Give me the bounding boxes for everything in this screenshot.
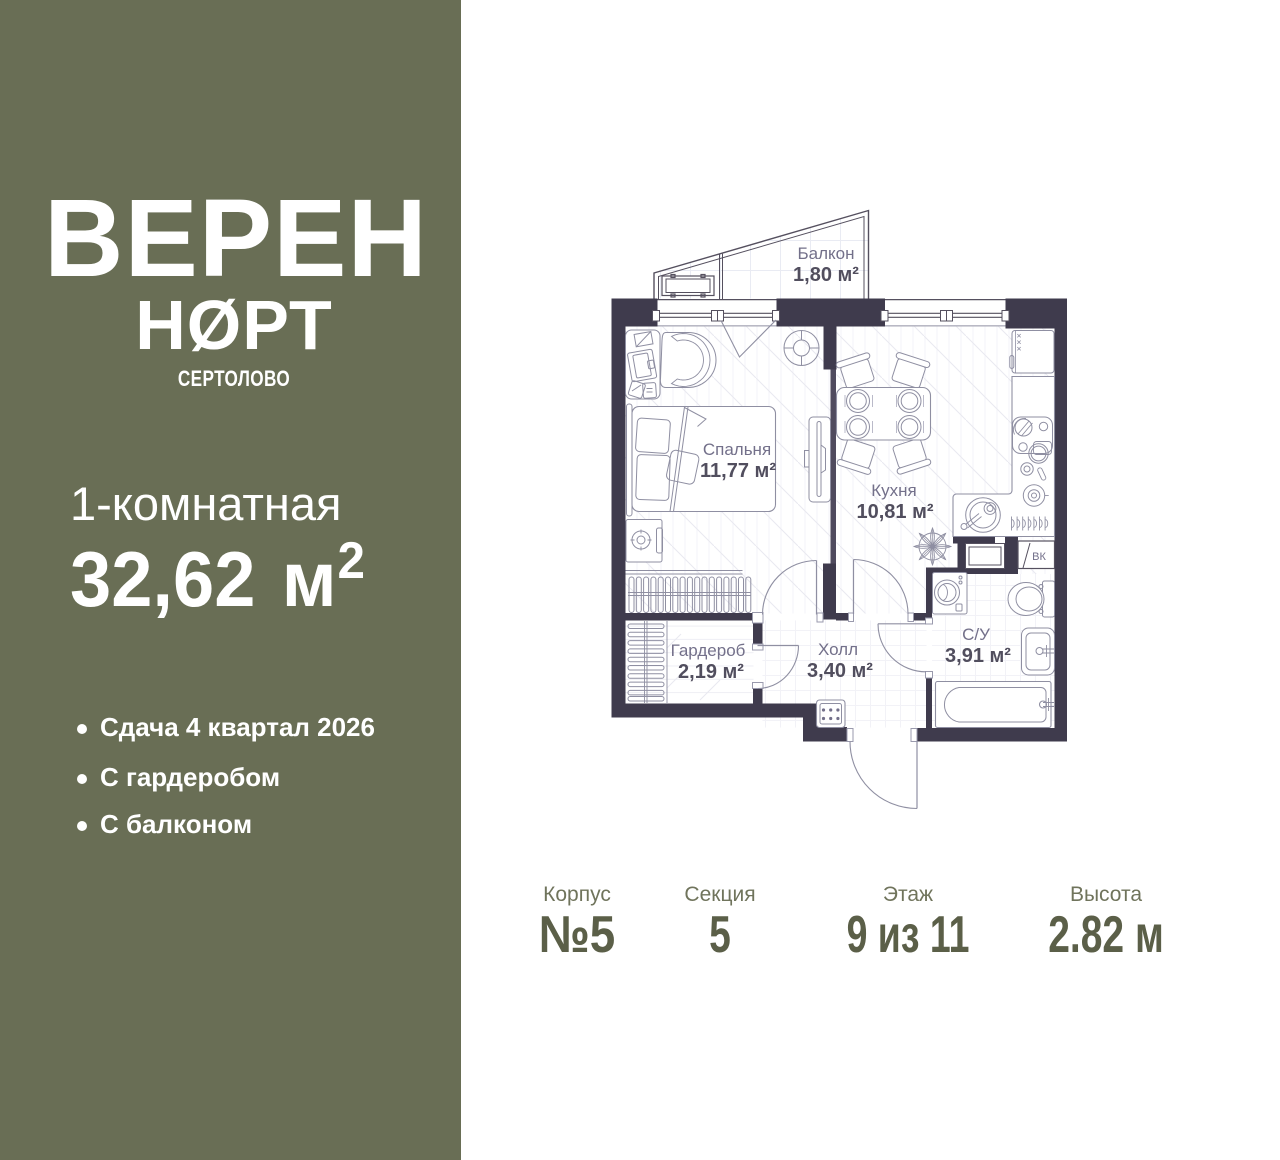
- svg-text:Кухня: Кухня: [871, 481, 917, 500]
- svg-text:Гардероб: Гардероб: [671, 641, 746, 660]
- svg-text:Спальня: Спальня: [703, 440, 771, 459]
- svg-text:10,81 м²: 10,81 м²: [856, 501, 933, 523]
- svg-text:Холл: Холл: [818, 640, 858, 659]
- svg-text:2,19 м²: 2,19 м²: [678, 661, 744, 683]
- svg-text:Балкон: Балкон: [797, 244, 854, 263]
- svg-text:1,80 м²: 1,80 м²: [793, 264, 859, 286]
- svg-text:11,77 м²: 11,77 м²: [700, 460, 776, 482]
- svg-text:3,91 м²: 3,91 м²: [945, 645, 1011, 667]
- svg-text:С/У: С/У: [962, 625, 990, 644]
- svg-text:ВК: ВК: [1032, 551, 1046, 563]
- svg-text:3,40 м²: 3,40 м²: [807, 660, 873, 682]
